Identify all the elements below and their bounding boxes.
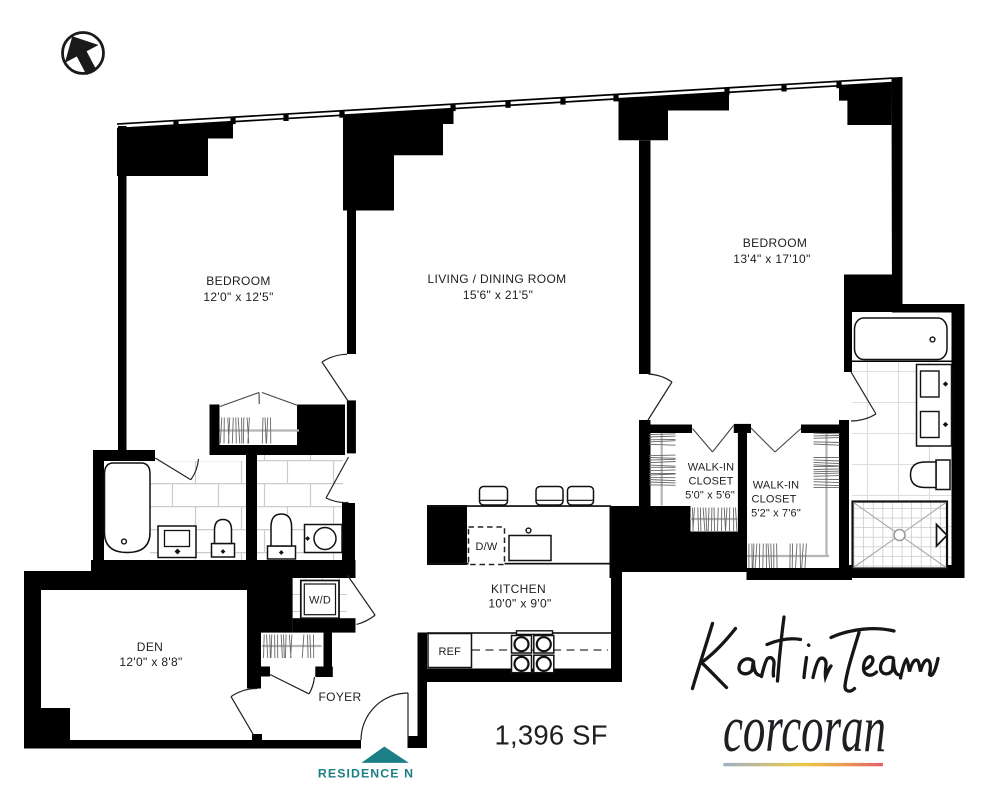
svg-text:5'2" x 7'6": 5'2" x 7'6" [751,508,801,520]
svg-text:5'0" x 5'6": 5'0" x 5'6" [685,490,735,502]
svg-text:1,396 SF: 1,396 SF [495,720,608,751]
svg-text:WALK-IN: WALK-IN [753,480,799,492]
svg-text:KITCHEN: KITCHEN [491,582,546,596]
svg-text:D/W: D/W [476,541,498,553]
svg-text:12'0" x 12'5": 12'0" x 12'5" [203,290,273,304]
svg-text:RESIDENCE N: RESIDENCE N [318,767,414,781]
svg-text:10'0" x 9'0": 10'0" x 9'0" [488,597,551,611]
svg-text:CLOSET: CLOSET [752,494,797,506]
svg-text:REF: REF [438,646,461,658]
svg-text:BEDROOM: BEDROOM [206,274,270,288]
svg-text:13'4" x 17'10": 13'4" x 17'10" [733,252,810,266]
svg-text:BEDROOM: BEDROOM [743,236,807,250]
svg-text:corcoran: corcoran [723,692,886,766]
svg-text:LIVING / DINING ROOM: LIVING / DINING ROOM [427,272,566,286]
svg-text:W/D: W/D [309,595,331,607]
svg-text:FOYER: FOYER [318,690,361,704]
svg-text:DEN: DEN [137,640,163,654]
svg-text:WALK-IN: WALK-IN [688,462,734,474]
svg-text:12'0" x 8'8": 12'0" x 8'8" [119,655,182,669]
svg-text:15'6" x 21'5": 15'6" x 21'5" [463,288,533,302]
svg-text:CLOSET: CLOSET [689,476,734,488]
